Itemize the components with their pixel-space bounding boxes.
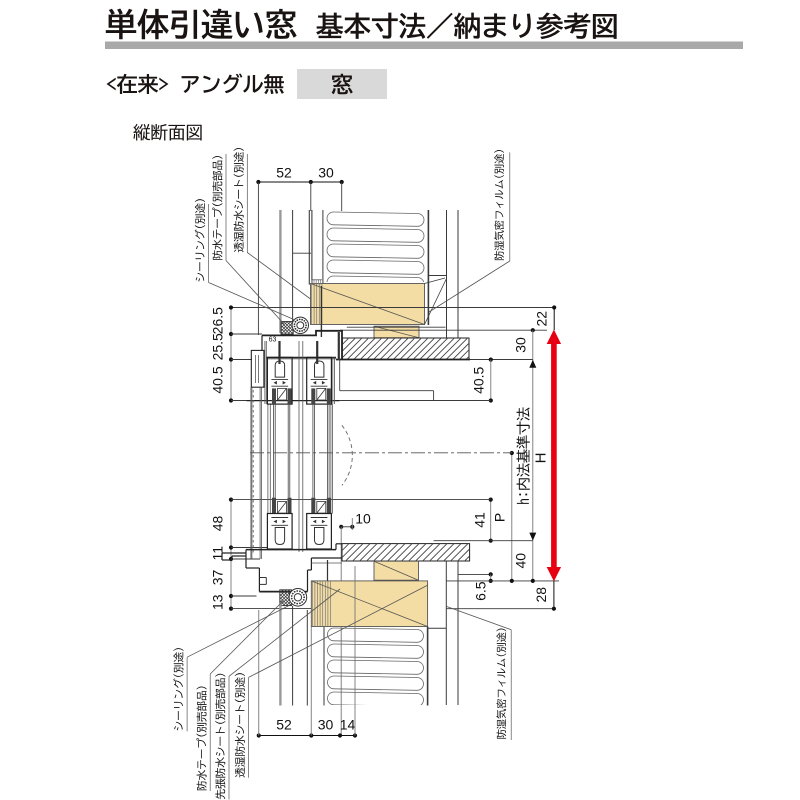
svg-text:52: 52 [276,165,292,181]
svg-text:H: H [533,453,550,464]
svg-text:25.5: 25.5 [209,333,225,360]
svg-text:P: P [492,513,508,522]
svg-text:41: 41 [472,512,488,528]
svg-text:48: 48 [209,516,225,532]
svg-text:10: 10 [355,511,371,527]
svg-text:22: 22 [534,311,550,327]
svg-text:40.5: 40.5 [209,366,225,393]
svg-text:37: 37 [209,570,225,586]
svg-text:63: 63 [269,337,277,344]
svg-text:30: 30 [513,337,529,353]
svg-text:52: 52 [276,717,292,733]
svg-text:26.5: 26.5 [209,307,225,334]
svg-text:30: 30 [318,165,334,181]
svg-text:28: 28 [533,587,549,603]
svg-text:30: 30 [318,717,334,733]
svg-text:40: 40 [513,553,529,569]
svg-text:13: 13 [209,594,225,610]
svg-text:6.5: 6.5 [473,581,489,601]
svg-text:40.5: 40.5 [471,366,487,393]
svg-text:14: 14 [340,717,356,733]
